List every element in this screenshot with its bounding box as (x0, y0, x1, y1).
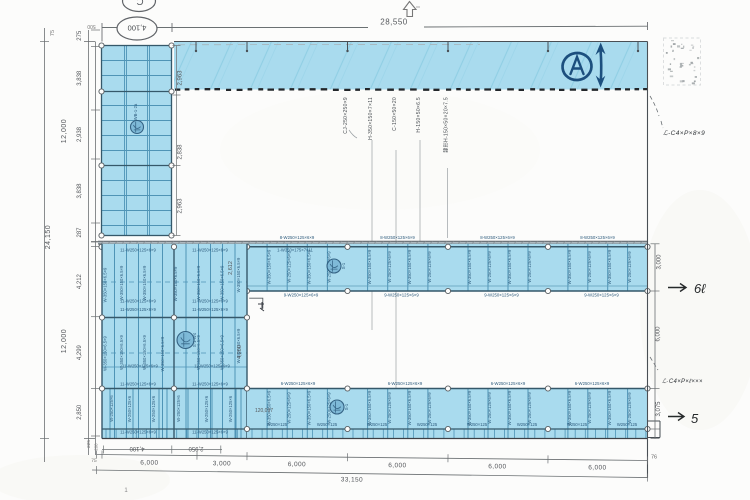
svg-text:6ℓ: 6ℓ (694, 281, 706, 296)
svg-text:9-W250×125×6×9: 9-W250×125×6×9 (584, 293, 619, 298)
svg-text:3,838: 3,838 (77, 70, 83, 86)
svg-text:11-W250×125×6×9: 11-W250×125×6×9 (192, 382, 228, 387)
svg-text:11-W250×125×6×9: 11-W250×125×6×9 (120, 430, 156, 435)
svg-text:8-W250×125×6×9: 8-W250×125×6×9 (380, 235, 415, 240)
svg-text:隸形H-150×50×20×7.5: 隸形H-150×50×20×7.5 (443, 97, 450, 153)
svg-text:W·250×125×6×9: W·250×125×6×9 (427, 392, 432, 424)
svg-text:W-350×150×6.5×9: W-350×150×6.5×9 (119, 334, 124, 369)
svg-text:9-W250×125×6×9: 9-W250×125×6×9 (284, 293, 319, 298)
svg-text:H-150×50×6.5: H-150×50×6.5 (416, 97, 422, 133)
svg-text:W·250×125×6×9: W·250×125×6×9 (627, 392, 632, 424)
svg-text:8-W250×125×6×9: 8-W250×125×6×9 (580, 235, 615, 240)
svg-text:2,963: 2,963 (178, 70, 184, 86)
svg-text:6-W250×125×6×9: 6-W250×125×6×9 (388, 381, 423, 386)
svg-text:75: 75 (91, 458, 97, 464)
svg-text:9-W250×125×6×9: 9-W250×125×6×9 (484, 293, 519, 298)
svg-text:200: 200 (94, 443, 99, 451)
svg-text:W·250×125×6×9: W·250×125×6×9 (387, 251, 392, 283)
svg-text:6,000: 6,000 (588, 464, 606, 471)
svg-text:6,000: 6,000 (140, 459, 158, 466)
svg-text:2,950: 2,950 (188, 445, 204, 451)
svg-text:6,000: 6,000 (656, 326, 662, 342)
svg-text:3,000: 3,000 (657, 254, 663, 270)
svg-text:W-350×150×6.5×9: W-350×150×6.5×9 (367, 249, 372, 284)
svg-text:W-350×150×6.5×9: W-350×150×6.5×9 (220, 334, 225, 369)
svg-text:W·250×125×6×9: W·250×125×6×9 (387, 392, 392, 424)
svg-text:W·250×125×6×9: W·250×125×6×9 (427, 251, 432, 283)
svg-text:6-W250×125×6×9: 6-W250×125×6×9 (491, 381, 526, 386)
svg-text:CJ-250×250×9: CJ-250×250×9 (343, 97, 349, 134)
svg-text:2,850: 2,850 (77, 404, 83, 420)
svg-text:3,075: 3,075 (656, 401, 662, 417)
svg-text:W-350×150×6.5×9: W-350×150×6.5×9 (103, 335, 108, 370)
svg-text:W-350×150×6.5×9: W-350×150×6.5×9 (266, 249, 271, 284)
svg-text:W-350×150×6.5×9: W-350×150×6.5×9 (507, 249, 512, 284)
svg-text:H-350×150×7×11: H-350×150×7×11 (368, 97, 374, 140)
svg-text:W-250×125×6: W-250×125×6 (151, 395, 156, 422)
svg-text:6-W250×125×6×9: 6-W250×125×6×9 (281, 381, 316, 386)
svg-text:W-350×150×6.5×9: W-350×150×6.5×9 (103, 267, 108, 302)
svg-text:4,212: 4,212 (77, 273, 83, 289)
svg-text:C-150×50×20: C-150×50×20 (392, 97, 398, 131)
svg-text:11-W250×125×6×9: 11-W250×125×6×9 (120, 382, 156, 387)
svg-text:24,150: 24,150 (45, 225, 52, 249)
svg-text:225: 225 (86, 440, 92, 448)
svg-text:12,000: 12,000 (61, 119, 68, 143)
svg-text:W-250×125×6: W-250×125×6 (109, 395, 114, 422)
svg-text:W·250×125×6×9: W·250×125×6×9 (527, 392, 532, 424)
svg-text:W-350×150×6.5×9: W-350×150×6.5×9 (119, 265, 124, 300)
svg-text:W·250×125×6×9: W·250×125×6×9 (286, 392, 291, 424)
svg-text:2,612: 2,612 (228, 261, 234, 275)
svg-text:3,838: 3,838 (77, 183, 83, 199)
svg-text:3,000: 3,000 (213, 460, 231, 467)
svg-text:11-W250×125×6×9: 11-W250×125×6×9 (192, 248, 228, 253)
svg-text:W·250×125×6×9: W·250×125×6×9 (527, 251, 532, 283)
svg-text:6,000: 6,000 (288, 461, 306, 468)
svg-text:W-350×150×6.5×9: W-350×150×6.5×9 (142, 265, 147, 300)
svg-text:W-350×150×6.5×9: W-350×150×6.5×9 (307, 249, 312, 284)
svg-text:W-250×125×6: W-250×125×6 (228, 395, 233, 422)
svg-text:W-350×150×6.5×9: W-350×150×6.5×9 (196, 265, 201, 300)
svg-text:12,000: 12,000 (61, 329, 68, 353)
svg-text:4,200: 4,200 (237, 345, 243, 359)
svg-text:ℒ-C4×P×8×9: ℒ-C4×P×8×9 (663, 130, 705, 137)
svg-text:28,550: 28,550 (380, 18, 408, 27)
svg-text:W-250×125×6: W-250×125×6 (127, 395, 132, 422)
svg-text:8-W250×125×6×9: 8-W250×125×6×9 (480, 235, 515, 240)
svg-text:W-350×150×6.5×9: W-350×150×6.5×9 (567, 249, 572, 284)
svg-text:W·250×125×6×9: W·250×125×6×9 (587, 251, 592, 283)
svg-text:11-W250×125×6×9: 11-W250×125×6×9 (122, 364, 158, 369)
svg-text:ℒ·C4×P×ℓ×××: ℒ·C4×P×ℓ××× (662, 378, 703, 385)
svg-text:11-W250×125×6×9: 11-W250×125×6×9 (120, 299, 156, 304)
svg-text:W-350×150×6.5×9: W-350×150×6.5×9 (307, 390, 312, 425)
svg-text:C: C (136, 0, 143, 6)
svg-text:4,299: 4,299 (77, 344, 83, 360)
svg-text:W·250×125×6×9: W·250×125×6×9 (487, 251, 492, 283)
svg-text:W-250×125×6: W-250×125×6 (204, 395, 209, 422)
svg-text:W-350×150×6.5×9: W-350×150×6.5×9 (467, 390, 472, 425)
svg-text:75: 75 (50, 30, 56, 36)
svg-text:S-1: S-1 (344, 403, 349, 410)
svg-text:11-W250×125×6×9: 11-W250×125×6×9 (192, 430, 228, 435)
svg-text:11-W250×125×6×9: 11-W250×125×6×9 (120, 307, 156, 312)
svg-text:WB-1·2a: WB-1·2a (133, 103, 138, 120)
svg-text:W-350×150×6.5×9: W-350×150×6.5×9 (173, 266, 178, 301)
svg-text:W-350×150×6.5×9: W-350×150×6.5×9 (607, 390, 612, 425)
svg-text:500: 500 (87, 23, 96, 29)
svg-text:6-W250×125×6×9: 6-W250×125×6×9 (575, 381, 610, 386)
svg-text:2,938: 2,938 (77, 126, 83, 142)
svg-text:W·250×125×6×9: W·250×125×6×9 (627, 251, 632, 283)
svg-text:9-W250×125×6×9: 9-W250×125×6×9 (384, 293, 419, 298)
svg-text:287: 287 (77, 227, 83, 238)
svg-text:W-350×150×6.5×9: W-350×150×6.5×9 (567, 390, 572, 425)
svg-text:S-1: S-1 (341, 262, 346, 269)
svg-text:11-W250×125×6×9: 11-W250×125×6×9 (120, 248, 156, 253)
svg-text:33,150: 33,150 (341, 476, 363, 483)
svg-text:W-350×150×6.5×9: W-350×150×6.5×9 (407, 249, 412, 284)
svg-text:6,000: 6,000 (388, 462, 406, 469)
svg-text:W·250×125×6×9: W·250×125×6×9 (587, 392, 592, 424)
svg-text:4,100: 4,100 (128, 24, 147, 33)
svg-text:W-350×150×6.5×9: W-350×150×6.5×9 (507, 390, 512, 425)
svg-text:S·1·W4: S·1·W4 (192, 332, 197, 347)
svg-text:8-W250×125×6×9: 8-W250×125×6×9 (280, 235, 315, 240)
svg-text:W-350×150×6.5×9: W-350×150×6.5×9 (367, 390, 372, 425)
svg-text:W-250×125×6: W-250×125×6 (176, 395, 181, 422)
svg-text:W·250×125×6×9: W·250×125×6×9 (487, 392, 492, 424)
svg-text:W·250×125×6×9: W·250×125×6×9 (286, 251, 291, 283)
svg-text:W-350×150×6.5×9: W-350×150×6.5×9 (607, 249, 612, 284)
svg-text:4,100: 4,100 (129, 445, 145, 451)
svg-text:W-350×150×6.5×9: W-350×150×6.5×9 (467, 249, 472, 284)
svg-text:6,000: 6,000 (488, 463, 506, 470)
svg-text:120,097: 120,097 (255, 408, 273, 414)
svg-text:5: 5 (691, 411, 699, 426)
svg-text:2,838: 2,838 (178, 144, 184, 160)
svg-text:W-350×150×6.5×9: W-350×150×6.5×9 (236, 257, 241, 292)
svg-text:11-W250×125×6×9: 11-W250×125×6×9 (192, 307, 228, 312)
svg-text:76: 76 (651, 455, 657, 461)
svg-text:2,963: 2,963 (178, 198, 184, 214)
svg-text:W-350×150×6.5×9: W-350×150×6.5×9 (160, 336, 165, 371)
svg-text:275: 275 (77, 30, 83, 41)
svg-text:W-350×150×6.5×9: W-350×150×6.5×9 (142, 334, 147, 369)
svg-text:W-350×150×6.5×9: W-350×150×6.5×9 (407, 390, 412, 425)
svg-text:W-350×150×6.5×9: W-350×150×6.5×9 (220, 265, 225, 300)
